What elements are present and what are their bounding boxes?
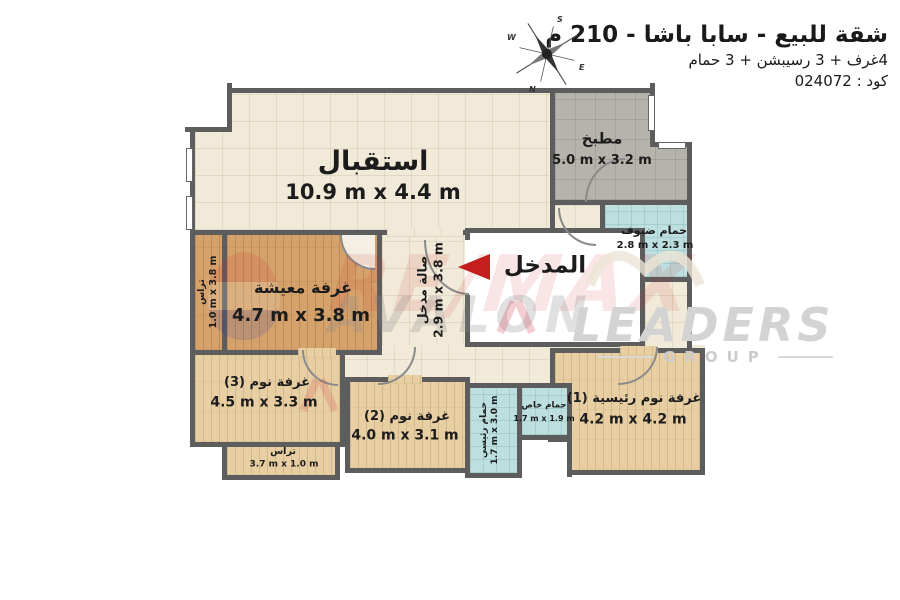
guest-bath-dims: 2.8 m x 2.3 m [617, 240, 694, 253]
reception-name: استقبال [318, 145, 429, 179]
terrace-bottom-dims: 3.7 m x 1.0 m [250, 459, 319, 470]
master-bedroom-name: غرفة نوم رئيسية (1) [567, 391, 702, 407]
compass-icon: S W N E [505, 12, 589, 96]
reception-dims: 10.9 m x 4.4 m [285, 179, 461, 205]
window-reception-left-1 [186, 148, 193, 182]
living-name: غرفة معيشة [254, 278, 352, 298]
entrance-hall-label: صالة مدخل 2.9 m x 3.8 m [414, 242, 445, 338]
bedroom2-name: غرفة نوم (2) [364, 409, 450, 425]
window-kitchen-step [658, 142, 686, 149]
main-bath-name: حمام رئيسي [479, 402, 489, 458]
kitchen-dims: 5.0 m x 3.2 m [552, 153, 652, 169]
door-gap-reception [387, 228, 463, 237]
terrace-bottom-name: تراس [270, 446, 296, 458]
master-bedroom-dims: 4.2 m x 4.2 m [579, 411, 686, 429]
terrace-left-dims: 1.0 m x 3.8 m [208, 256, 219, 329]
listing-header: شقة للبيع - سابا باشا - 210 م 4غرف + 3 ر… [545, 22, 888, 90]
entrance-label: المدخل [504, 252, 586, 281]
entrance-arrow-icon [458, 254, 490, 280]
listing-subtitle: 4غرف + 3 رسيبشن + 3 حمام [545, 51, 888, 69]
listing-code: كود : 024072 [545, 72, 888, 90]
compass-s: S [557, 15, 563, 24]
compass-n: N [529, 85, 536, 94]
reception-corner-notch [185, 83, 232, 132]
bedroom3-name: غرفة نوم (3) [224, 375, 310, 391]
floorplan-canvas: شقة للبيع - سابا باشا - 210 م 4غرف + 3 ر… [0, 0, 900, 600]
kitchen-corner-notch [650, 83, 692, 147]
main-bath-dims: 1.7 m x 3.0 m [490, 396, 500, 465]
main-bath-label: حمام رئيسي 1.7 m x 3.0 m [479, 396, 502, 465]
master-corner-notch [548, 437, 572, 477]
bedroom2-dims: 4.0 m x 3.1 m [351, 427, 458, 445]
window-kitchen-right [648, 95, 655, 131]
right-hall-floor [645, 277, 692, 350]
listing-title: شقة للبيع - سابا باشا - 210 م [545, 22, 888, 48]
entrance-hall-dims: 2.9 m x 3.8 m [430, 242, 445, 338]
kitchen-name: مطبخ [582, 130, 623, 149]
bedroom3-dims: 4.5 m x 3.3 m [210, 394, 317, 412]
guest-bath-name: حمام ضيوف [621, 224, 687, 238]
terrace-left-label: تراس 1.0 m x 3.8 m [196, 256, 220, 329]
compass-w: W [507, 33, 517, 42]
private-bath-dims: 1.7 m x 1.9 m [513, 414, 574, 424]
private-bath-name: حمام خاص [522, 401, 567, 412]
private-bathroom-room [517, 383, 572, 440]
terrace-left-name: تراس [196, 279, 207, 305]
living-dims: 4.7 m x 3.8 m [232, 305, 370, 328]
compass-e: E [579, 63, 585, 72]
group-line-right [778, 356, 833, 358]
entrance-hall-name: صالة مدخل [414, 256, 429, 325]
window-reception-left-2 [186, 196, 193, 230]
